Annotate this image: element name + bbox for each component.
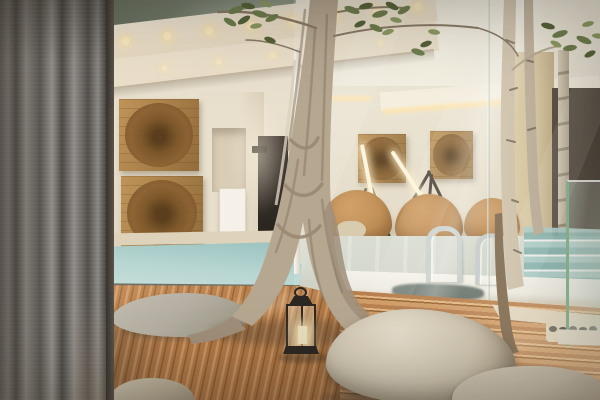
photo-canvas <box>0 0 600 400</box>
lantern-base <box>283 346 319 354</box>
candle-lantern <box>281 287 321 359</box>
lantern-body <box>286 304 316 348</box>
candle <box>298 326 307 344</box>
curtain-sheer-translucency <box>75 290 106 400</box>
